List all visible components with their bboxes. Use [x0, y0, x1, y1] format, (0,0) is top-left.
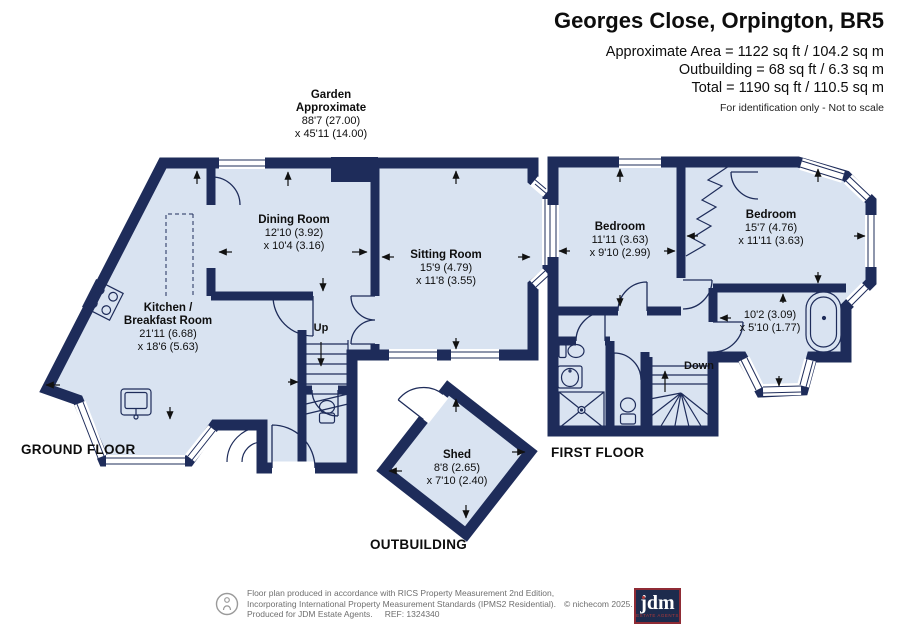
footer-line-2: Incorporating International Property Mea…: [247, 599, 556, 609]
ground-floor-title: GROUND FLOOR: [21, 442, 136, 457]
room-label-bedroom2: Bedroom 15'7 (4.76) x 11'11 (3.63): [738, 209, 803, 248]
stairs-up-label: Up: [314, 322, 329, 334]
reference-number: REF: 1324340: [385, 609, 440, 619]
stairs-down-label: Down: [684, 360, 714, 372]
jdm-logo-text: jdm: [640, 595, 674, 612]
jdm-logo-dot: [642, 596, 645, 599]
footer-line-3: Produced for JDM Estate Agents.: [247, 609, 373, 619]
first-floor-plan: [550, 159, 874, 431]
jdm-logo: jdm ESTATE AGENTS: [634, 588, 681, 624]
room-label-sitting: Sitting Room 15'9 (4.79) x 11'8 (3.55): [410, 249, 482, 288]
garden-label: Garden Approximate 88'7 (27.00) x 45'11 …: [295, 89, 367, 141]
copyright: © nichecom 2025.: [564, 599, 633, 609]
footer-line-1: Floor plan produced in accordance with R…: [247, 588, 554, 598]
room-label-kitchen: Kitchen / Breakfast Room 21'11 (6.68) x …: [124, 302, 212, 354]
room-label-shed: Shed 8'8 (2.65) x 7'10 (2.40): [427, 449, 488, 488]
first-floor-title: FIRST FLOOR: [551, 445, 644, 460]
outbuilding-title: OUTBUILDING: [370, 537, 467, 552]
room-label-bedroom1: Bedroom 11'11 (3.63) x 9'10 (2.99): [590, 221, 651, 260]
person-icon: [215, 591, 241, 619]
floorplan-page: Georges Close, Orpington, BR5 Approximat…: [0, 0, 900, 636]
room-label-dining: Dining Room 12'10 (3.92) x 10'4 (3.16): [258, 214, 330, 253]
room-label-bathroom: 10'2 (3.09) x 5'10 (1.77): [740, 309, 801, 335]
footer-text: Floor plan produced in accordance with R…: [247, 588, 633, 620]
